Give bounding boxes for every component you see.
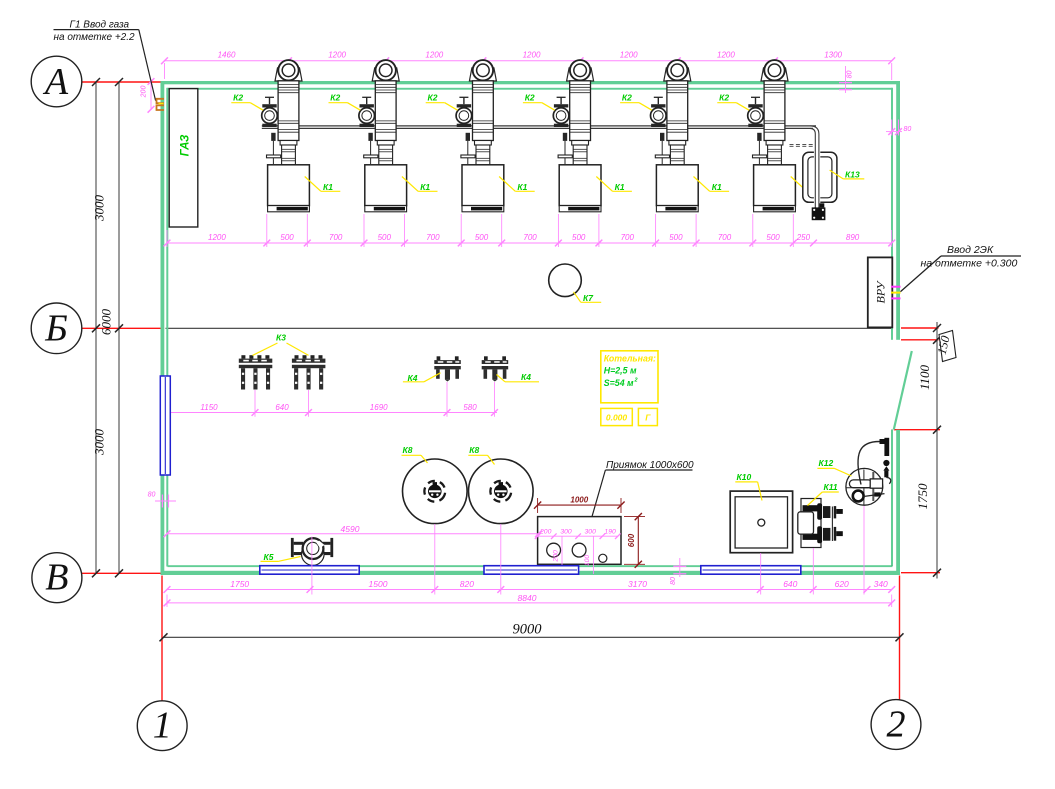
svg-text:1200: 1200 [208, 233, 226, 242]
svg-text:340: 340 [874, 579, 888, 589]
svg-text:Г: Г [645, 412, 651, 422]
svg-text:100: 100 [584, 555, 591, 567]
svg-text:500: 500 [280, 233, 294, 242]
svg-text:620: 620 [835, 579, 849, 589]
svg-text:890: 890 [846, 233, 860, 242]
svg-text:ВРУ: ВРУ [874, 280, 888, 304]
svg-text:К2: К2 [719, 93, 729, 103]
svg-text:К2: К2 [233, 93, 243, 103]
svg-text:1200: 1200 [717, 51, 735, 60]
svg-text:1000: 1000 [570, 496, 588, 505]
svg-text:300: 300 [585, 529, 597, 536]
svg-text:К3: К3 [276, 333, 286, 343]
svg-text:К2: К2 [622, 93, 632, 103]
svg-text:500: 500 [669, 233, 683, 242]
svg-text:1200: 1200 [328, 51, 346, 60]
svg-text:1300: 1300 [824, 51, 842, 60]
svg-text:ГАЗ: ГАЗ [179, 134, 191, 156]
svg-text:К13: К13 [845, 169, 860, 179]
svg-text:К2: К2 [330, 93, 340, 103]
svg-text:80: 80 [904, 126, 912, 133]
svg-text:К1: К1 [323, 182, 333, 192]
svg-text:6000: 6000 [99, 309, 114, 336]
svg-text:К2: К2 [525, 93, 535, 103]
svg-text:1150: 1150 [200, 403, 218, 412]
svg-text:на отметке +0.300: на отметке +0.300 [921, 258, 1018, 270]
svg-text:К12: К12 [819, 458, 834, 468]
svg-text:190: 190 [604, 529, 616, 536]
svg-text:К1: К1 [615, 182, 625, 192]
svg-text:Котельная:: Котельная: [604, 354, 656, 364]
svg-text:200: 200 [141, 86, 148, 99]
svg-text:К4: К4 [521, 372, 531, 382]
svg-text:80: 80 [847, 71, 854, 79]
svg-text:Г1 Ввод газа: Г1 Ввод газа [70, 20, 130, 31]
svg-text:820: 820 [460, 579, 474, 589]
svg-text:500: 500 [766, 233, 780, 242]
svg-text:700: 700 [329, 233, 343, 242]
svg-text:Ввод 2ЭК: Ввод 2ЭК [947, 244, 994, 256]
svg-text:8840: 8840 [518, 593, 537, 603]
svg-text:700: 700 [426, 233, 440, 242]
svg-text:1200: 1200 [425, 51, 443, 60]
svg-text:1690: 1690 [370, 403, 388, 412]
svg-text:2: 2 [634, 378, 638, 384]
svg-text:700: 700 [523, 233, 537, 242]
svg-text:К1: К1 [712, 182, 722, 192]
svg-text:250: 250 [796, 233, 811, 242]
svg-text:1750: 1750 [915, 483, 930, 510]
svg-text:80: 80 [148, 491, 156, 498]
svg-text:2: 2 [887, 704, 906, 746]
svg-text:К1: К1 [420, 182, 430, 192]
svg-text:700: 700 [718, 233, 732, 242]
svg-text:К5: К5 [264, 552, 274, 562]
svg-text:1100: 1100 [917, 364, 932, 390]
svg-text:S=54 м: S=54 м [604, 378, 634, 388]
svg-text:700: 700 [621, 233, 635, 242]
svg-text:80: 80 [670, 577, 677, 585]
svg-text:300: 300 [560, 529, 572, 536]
svg-text:600: 600 [627, 533, 636, 547]
svg-text:500: 500 [475, 233, 489, 242]
svg-text:500: 500 [572, 233, 586, 242]
svg-text:4590: 4590 [341, 524, 360, 534]
svg-text:0.000: 0.000 [606, 412, 628, 422]
svg-text:3170: 3170 [628, 579, 647, 589]
svg-text:640: 640 [783, 579, 797, 589]
svg-text:К10: К10 [737, 472, 752, 482]
svg-text:1200: 1200 [523, 51, 541, 60]
svg-text:640: 640 [275, 403, 289, 412]
svg-text:К2: К2 [428, 93, 438, 103]
svg-text:1460: 1460 [218, 51, 236, 60]
svg-text:на отметке +2.2: на отметке +2.2 [54, 32, 135, 43]
svg-text:580: 580 [463, 403, 477, 412]
svg-text:9000: 9000 [513, 622, 543, 638]
svg-text:3000: 3000 [92, 195, 107, 223]
svg-text:А: А [42, 61, 69, 103]
svg-text:В: В [45, 557, 68, 599]
svg-text:H=2,5 м: H=2,5 м [604, 366, 637, 376]
svg-text:3000: 3000 [92, 429, 107, 457]
svg-text:К1: К1 [517, 182, 527, 192]
svg-text:200: 200 [553, 550, 560, 563]
svg-text:Приямок 1000х600: Приямок 1000х600 [606, 460, 694, 471]
svg-text:К8: К8 [403, 445, 413, 455]
svg-text:500: 500 [378, 233, 392, 242]
svg-text:К8: К8 [469, 445, 479, 455]
svg-text:1: 1 [153, 705, 172, 747]
svg-text:Б: Б [44, 308, 67, 350]
svg-text:К7: К7 [583, 293, 594, 303]
svg-text:К11: К11 [824, 482, 838, 492]
svg-text:1500: 1500 [369, 579, 388, 589]
svg-text:1200: 1200 [620, 51, 638, 60]
svg-text:1750: 1750 [230, 579, 249, 589]
